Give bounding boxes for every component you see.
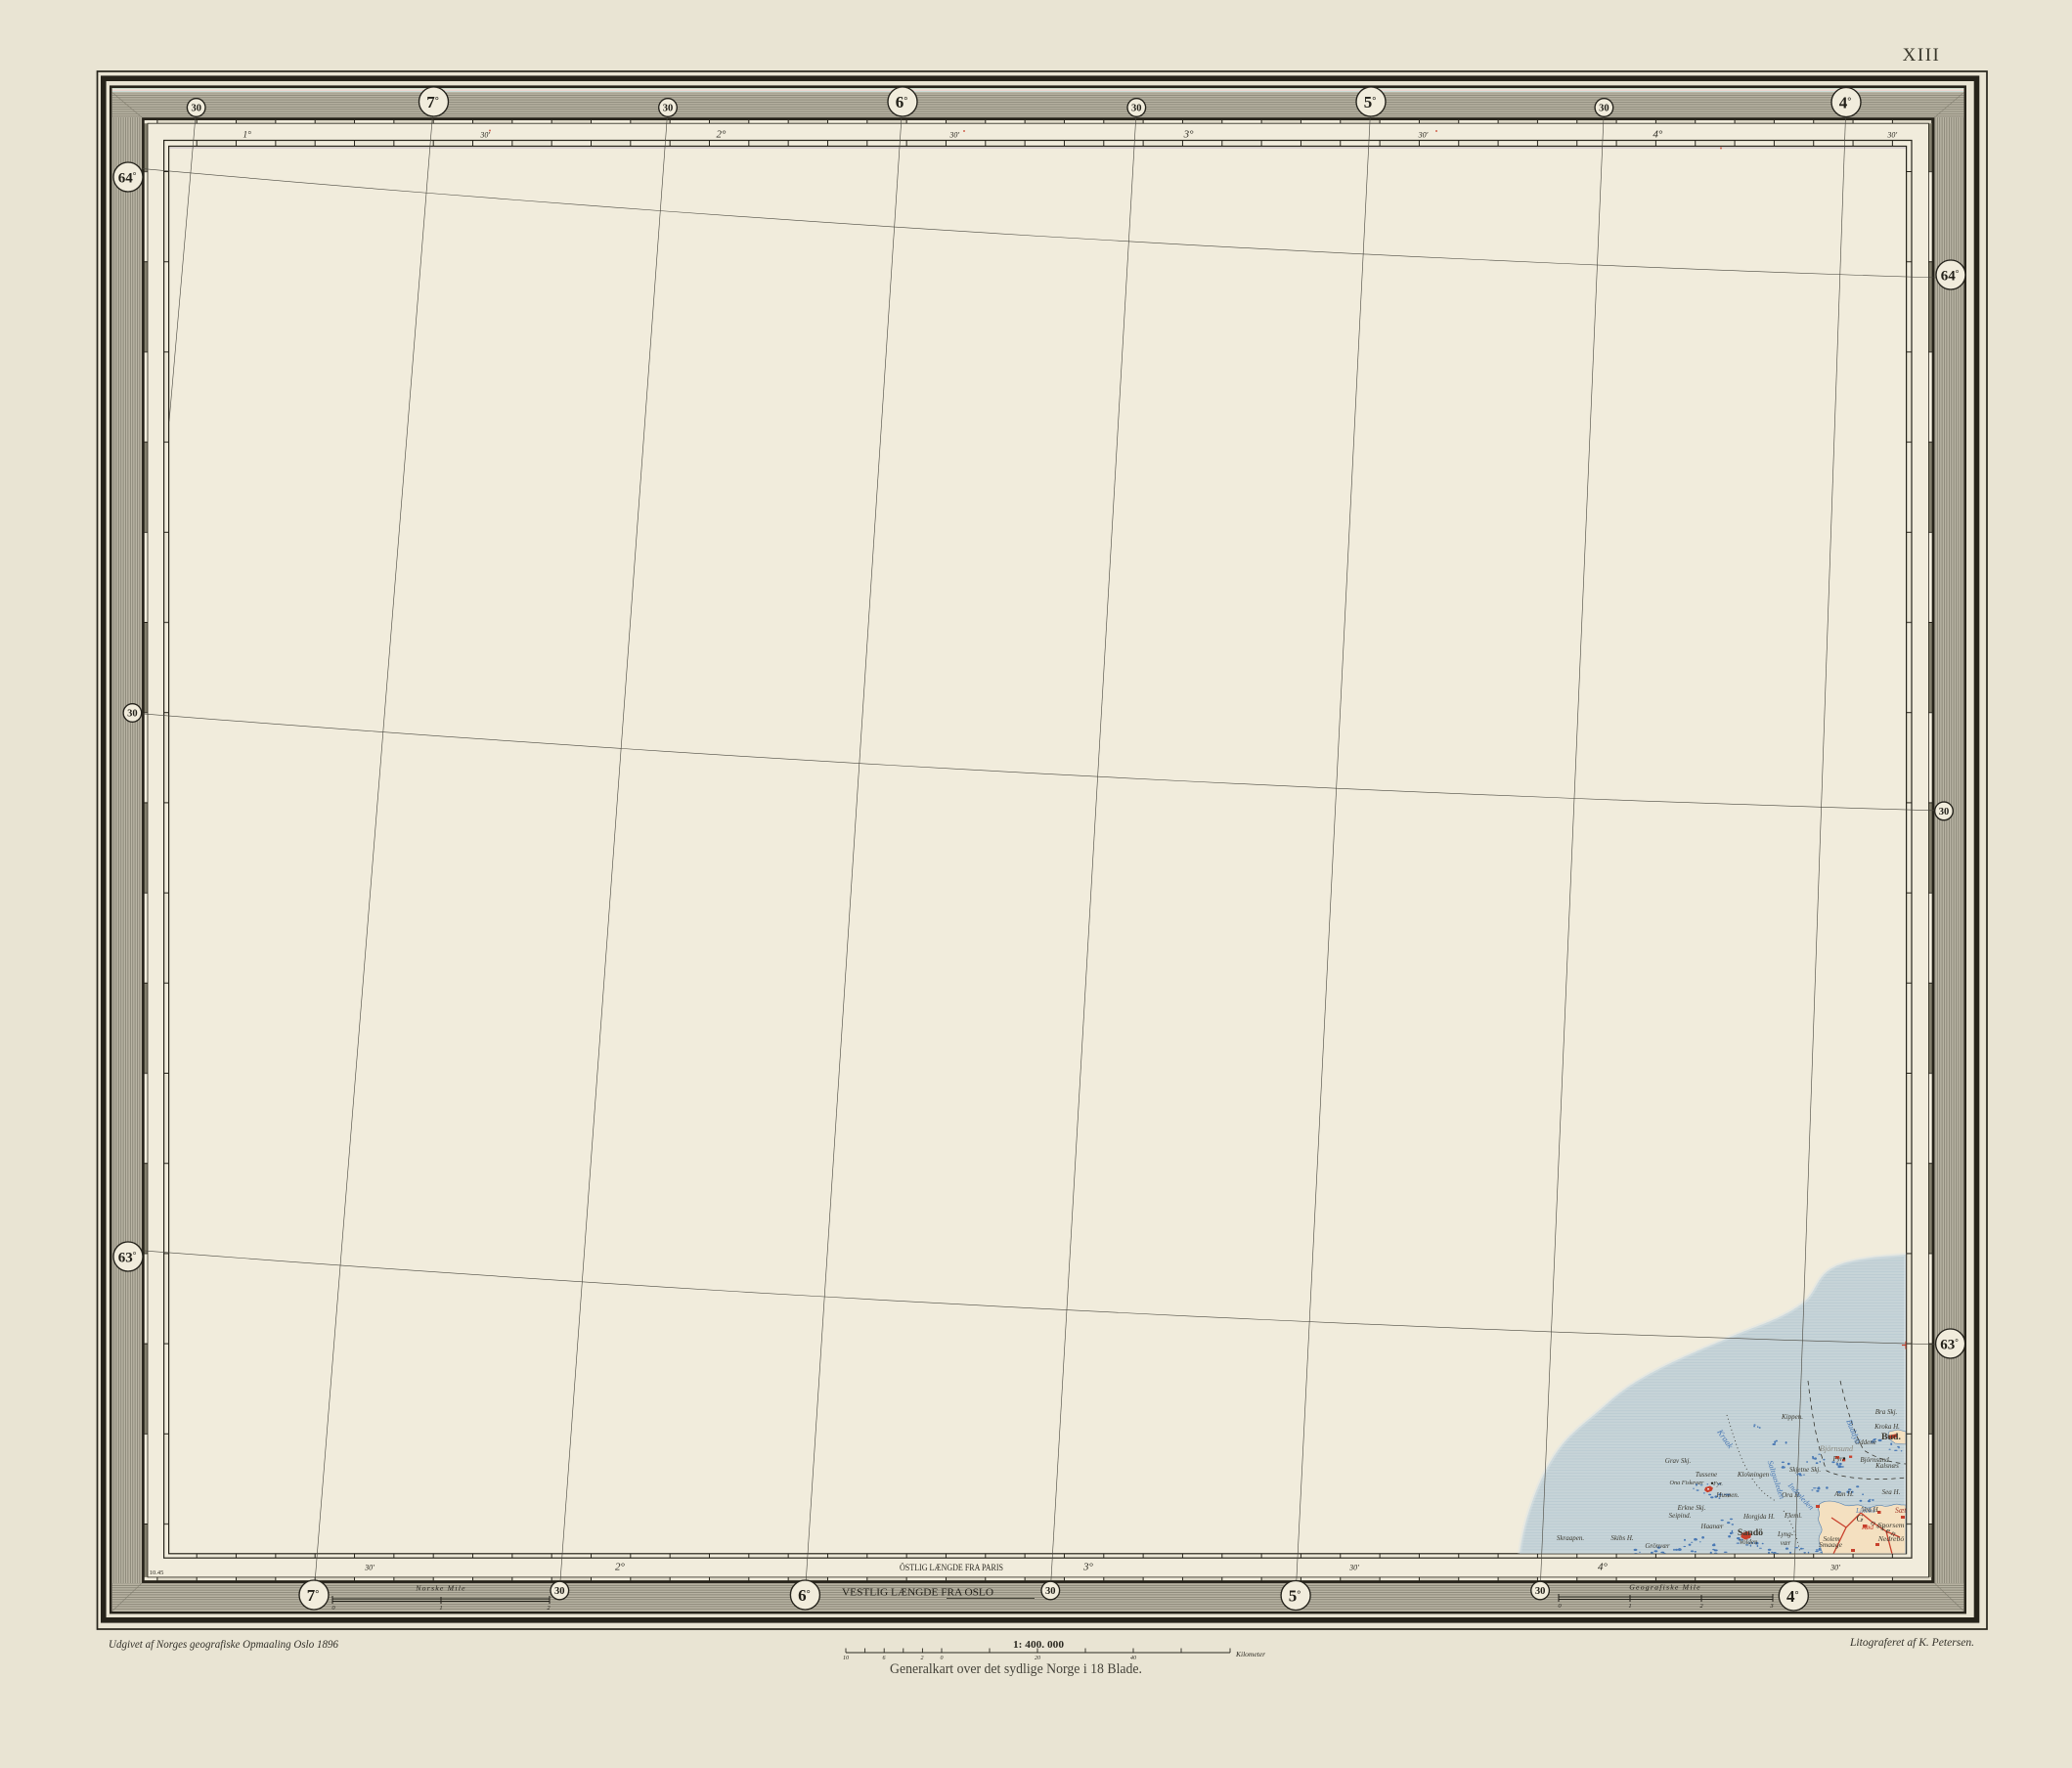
svg-text:Generalkart over det sydlige N: Generalkart over det sydlige Norge i 18 … [890,1661,1142,1677]
svg-text:1: 1 [439,1605,442,1612]
svg-text:30: 30 [1599,104,1609,114]
svg-text:Fyr.: Fyr. [1831,1455,1843,1463]
svg-text:2°: 2° [716,129,727,141]
svg-text:Grönvær: Grönvær [1645,1542,1670,1550]
svg-text:Klovningen: Klovningen [1737,1471,1770,1479]
svg-text:Erkne Skj.: Erkne Skj. [1677,1504,1706,1512]
svg-text:30′: 30′ [1348,1564,1359,1572]
svg-text:Fleml.: Fleml. [1784,1512,1802,1520]
svg-text:30: 30 [1045,1586,1056,1597]
svg-text:4°: 4° [1598,1562,1609,1573]
svg-text:Skibs H.: Skibs H. [1610,1534,1634,1542]
svg-text:Bra Skj.: Bra Skj. [1875,1408,1898,1416]
svg-text:Lillebö: Lillebö [1855,1507,1875,1515]
svg-text:Kroka H.: Kroka H. [1874,1423,1900,1431]
svg-text:Haanær: Haanær [1700,1523,1724,1530]
svg-text:Skraapen.: Skraapen. [1557,1534,1584,1542]
svg-text:30′: 30′ [948,131,959,140]
svg-text:Husøen.: Husøen. [1715,1491,1739,1499]
svg-text:40: 40 [1130,1655,1136,1661]
svg-text:Sandö: Sandö [1738,1527,1763,1538]
svg-text:30: 30 [1131,104,1142,114]
svg-text:Smaage: Smaage [1819,1540,1843,1549]
svg-text:G: G [1856,1514,1863,1525]
svg-text:30: 30 [663,104,674,114]
svg-text:Fyr.: Fyr. [1712,1481,1723,1487]
svg-text:30: 30 [1939,807,1950,818]
svg-text:Skjetne Skj.: Skjetne Skj. [1789,1466,1822,1474]
svg-text:Bud.: Bud. [1881,1432,1901,1442]
svg-text:30′: 30′ [364,1564,375,1572]
svg-text:VESTLIG LÆNGDE FRA OSLO: VESTLIG LÆNGDE FRA OSLO [842,1588,993,1599]
svg-text:30′: 30′ [1418,131,1429,140]
svg-text:1: 400. 000: 1: 400. 000 [1013,1640,1064,1651]
svg-text:Litograferet af K. Petersen.: Litograferet af K. Petersen. [1849,1637,1974,1649]
svg-text:30: 30 [127,709,138,720]
svg-text:Björnsund: Björnsund [1820,1444,1854,1453]
svg-text:30: 30 [1535,1586,1546,1597]
svg-text:Volden: Volden [1739,1538,1758,1546]
svg-text:30′: 30′ [1886,131,1897,140]
svg-text:Kalsnæs: Kalsnæs [1874,1462,1899,1470]
svg-text:30′: 30′ [479,131,490,140]
svg-text:Grav Skj.: Grav Skj. [1665,1457,1692,1465]
svg-text:Ona Fiskevær: Ona Fiskevær [1670,1480,1704,1486]
svg-text:Kippen.: Kippen. [1781,1413,1803,1421]
svg-text:30: 30 [191,104,201,114]
svg-text:Norske Mile: Norske Mile [415,1584,466,1593]
svg-text:2°: 2° [615,1562,626,1573]
svg-text:Udgivet af Norges geografiske: Udgivet af Norges geografiske Opmaaling … [109,1639,338,1651]
svg-text:Lyng-: Lyng- [1777,1530,1794,1538]
svg-text:Aan H.: Aan H. [1833,1490,1854,1498]
svg-text:10.45: 10.45 [150,1569,164,1576]
svg-text:Seipind.: Seipind. [1669,1512,1692,1520]
svg-text:1°: 1° [242,130,251,141]
svg-text:XIII: XIII [1903,45,1941,66]
svg-text:4°: 4° [1653,129,1663,141]
svg-text:3°: 3° [1183,129,1195,141]
svg-text:3°: 3° [1082,1562,1094,1573]
svg-text:vær: vær [1781,1539,1791,1547]
svg-text:Sea H.: Sea H. [1882,1488,1901,1496]
svg-text:Tussene: Tussene [1696,1471,1717,1479]
svg-text:6: 6 [883,1656,886,1661]
svg-text:10: 10 [843,1656,849,1661]
svg-text:Geografiske Mile: Geografiske Mile [1629,1583,1701,1592]
svg-text:1: 1 [1628,1603,1631,1610]
svg-text:ÖSTLIG LÆNGDE FRA PARIS: ÖSTLIG LÆNGDE FRA PARIS [900,1562,1003,1573]
svg-text:30: 30 [554,1586,565,1597]
svg-text:Kilometer: Kilometer [1235,1650,1265,1658]
svg-text:30′: 30′ [1830,1564,1840,1572]
svg-text:Horgjda H.: Horgjda H. [1742,1513,1775,1521]
